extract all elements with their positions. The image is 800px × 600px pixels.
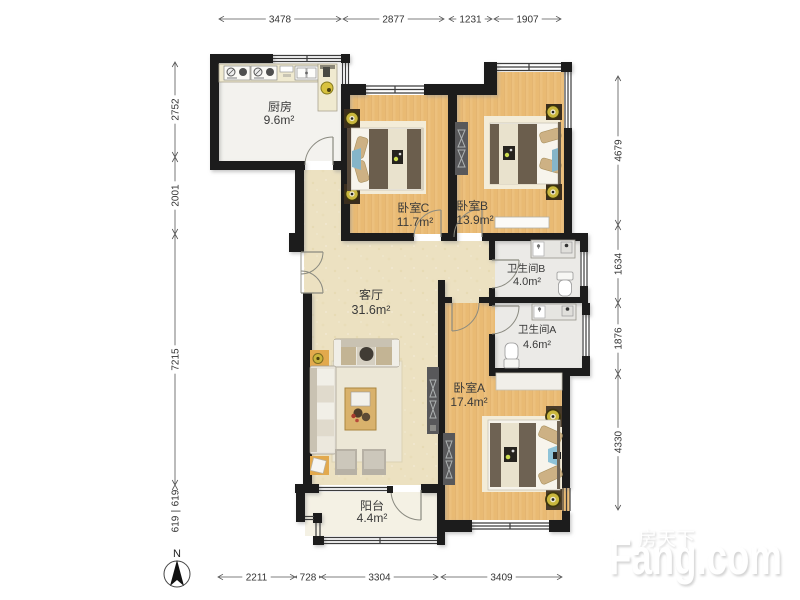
- svg-text:17.4m²: 17.4m²: [450, 395, 487, 409]
- svg-text:4.4m²: 4.4m²: [357, 511, 388, 525]
- svg-text:4.0m²: 4.0m²: [513, 276, 541, 288]
- svg-text:C: C: [421, 201, 430, 215]
- svg-text:|: |: [171, 510, 182, 513]
- svg-text:2752: 2752: [171, 98, 182, 121]
- svg-text:1634: 1634: [614, 252, 625, 275]
- svg-text:3409: 3409: [490, 573, 513, 584]
- svg-text:N: N: [173, 548, 181, 560]
- svg-text:9.6m²: 9.6m²: [264, 113, 295, 127]
- svg-text:728: 728: [300, 573, 317, 584]
- svg-text:2001: 2001: [171, 184, 182, 207]
- svg-text:A: A: [477, 381, 485, 395]
- svg-text:11.7m²: 11.7m²: [397, 215, 433, 229]
- svg-text:2211: 2211: [246, 573, 268, 584]
- svg-text:A: A: [549, 324, 556, 336]
- svg-text:3478: 3478: [269, 15, 292, 26]
- svg-text:1231: 1231: [459, 15, 482, 26]
- svg-text:3304: 3304: [368, 573, 391, 584]
- svg-text:1907: 1907: [516, 15, 539, 26]
- svg-text:7215: 7215: [171, 348, 182, 371]
- svg-text:4330: 4330: [614, 430, 625, 453]
- svg-text:4.6m²: 4.6m²: [523, 339, 551, 351]
- svg-text:B: B: [480, 199, 488, 213]
- svg-text:619: 619: [171, 489, 182, 506]
- svg-text:4679: 4679: [614, 139, 625, 162]
- svg-text:619: 619: [171, 515, 182, 532]
- svg-text:2877: 2877: [382, 15, 405, 26]
- svg-text:1876: 1876: [614, 327, 625, 350]
- svg-text:Fang.com: Fang.com: [609, 529, 782, 585]
- svg-text:31.6m²: 31.6m²: [352, 303, 391, 317]
- svg-text:13.9m²: 13.9m²: [456, 213, 493, 227]
- svg-text:B: B: [538, 263, 545, 275]
